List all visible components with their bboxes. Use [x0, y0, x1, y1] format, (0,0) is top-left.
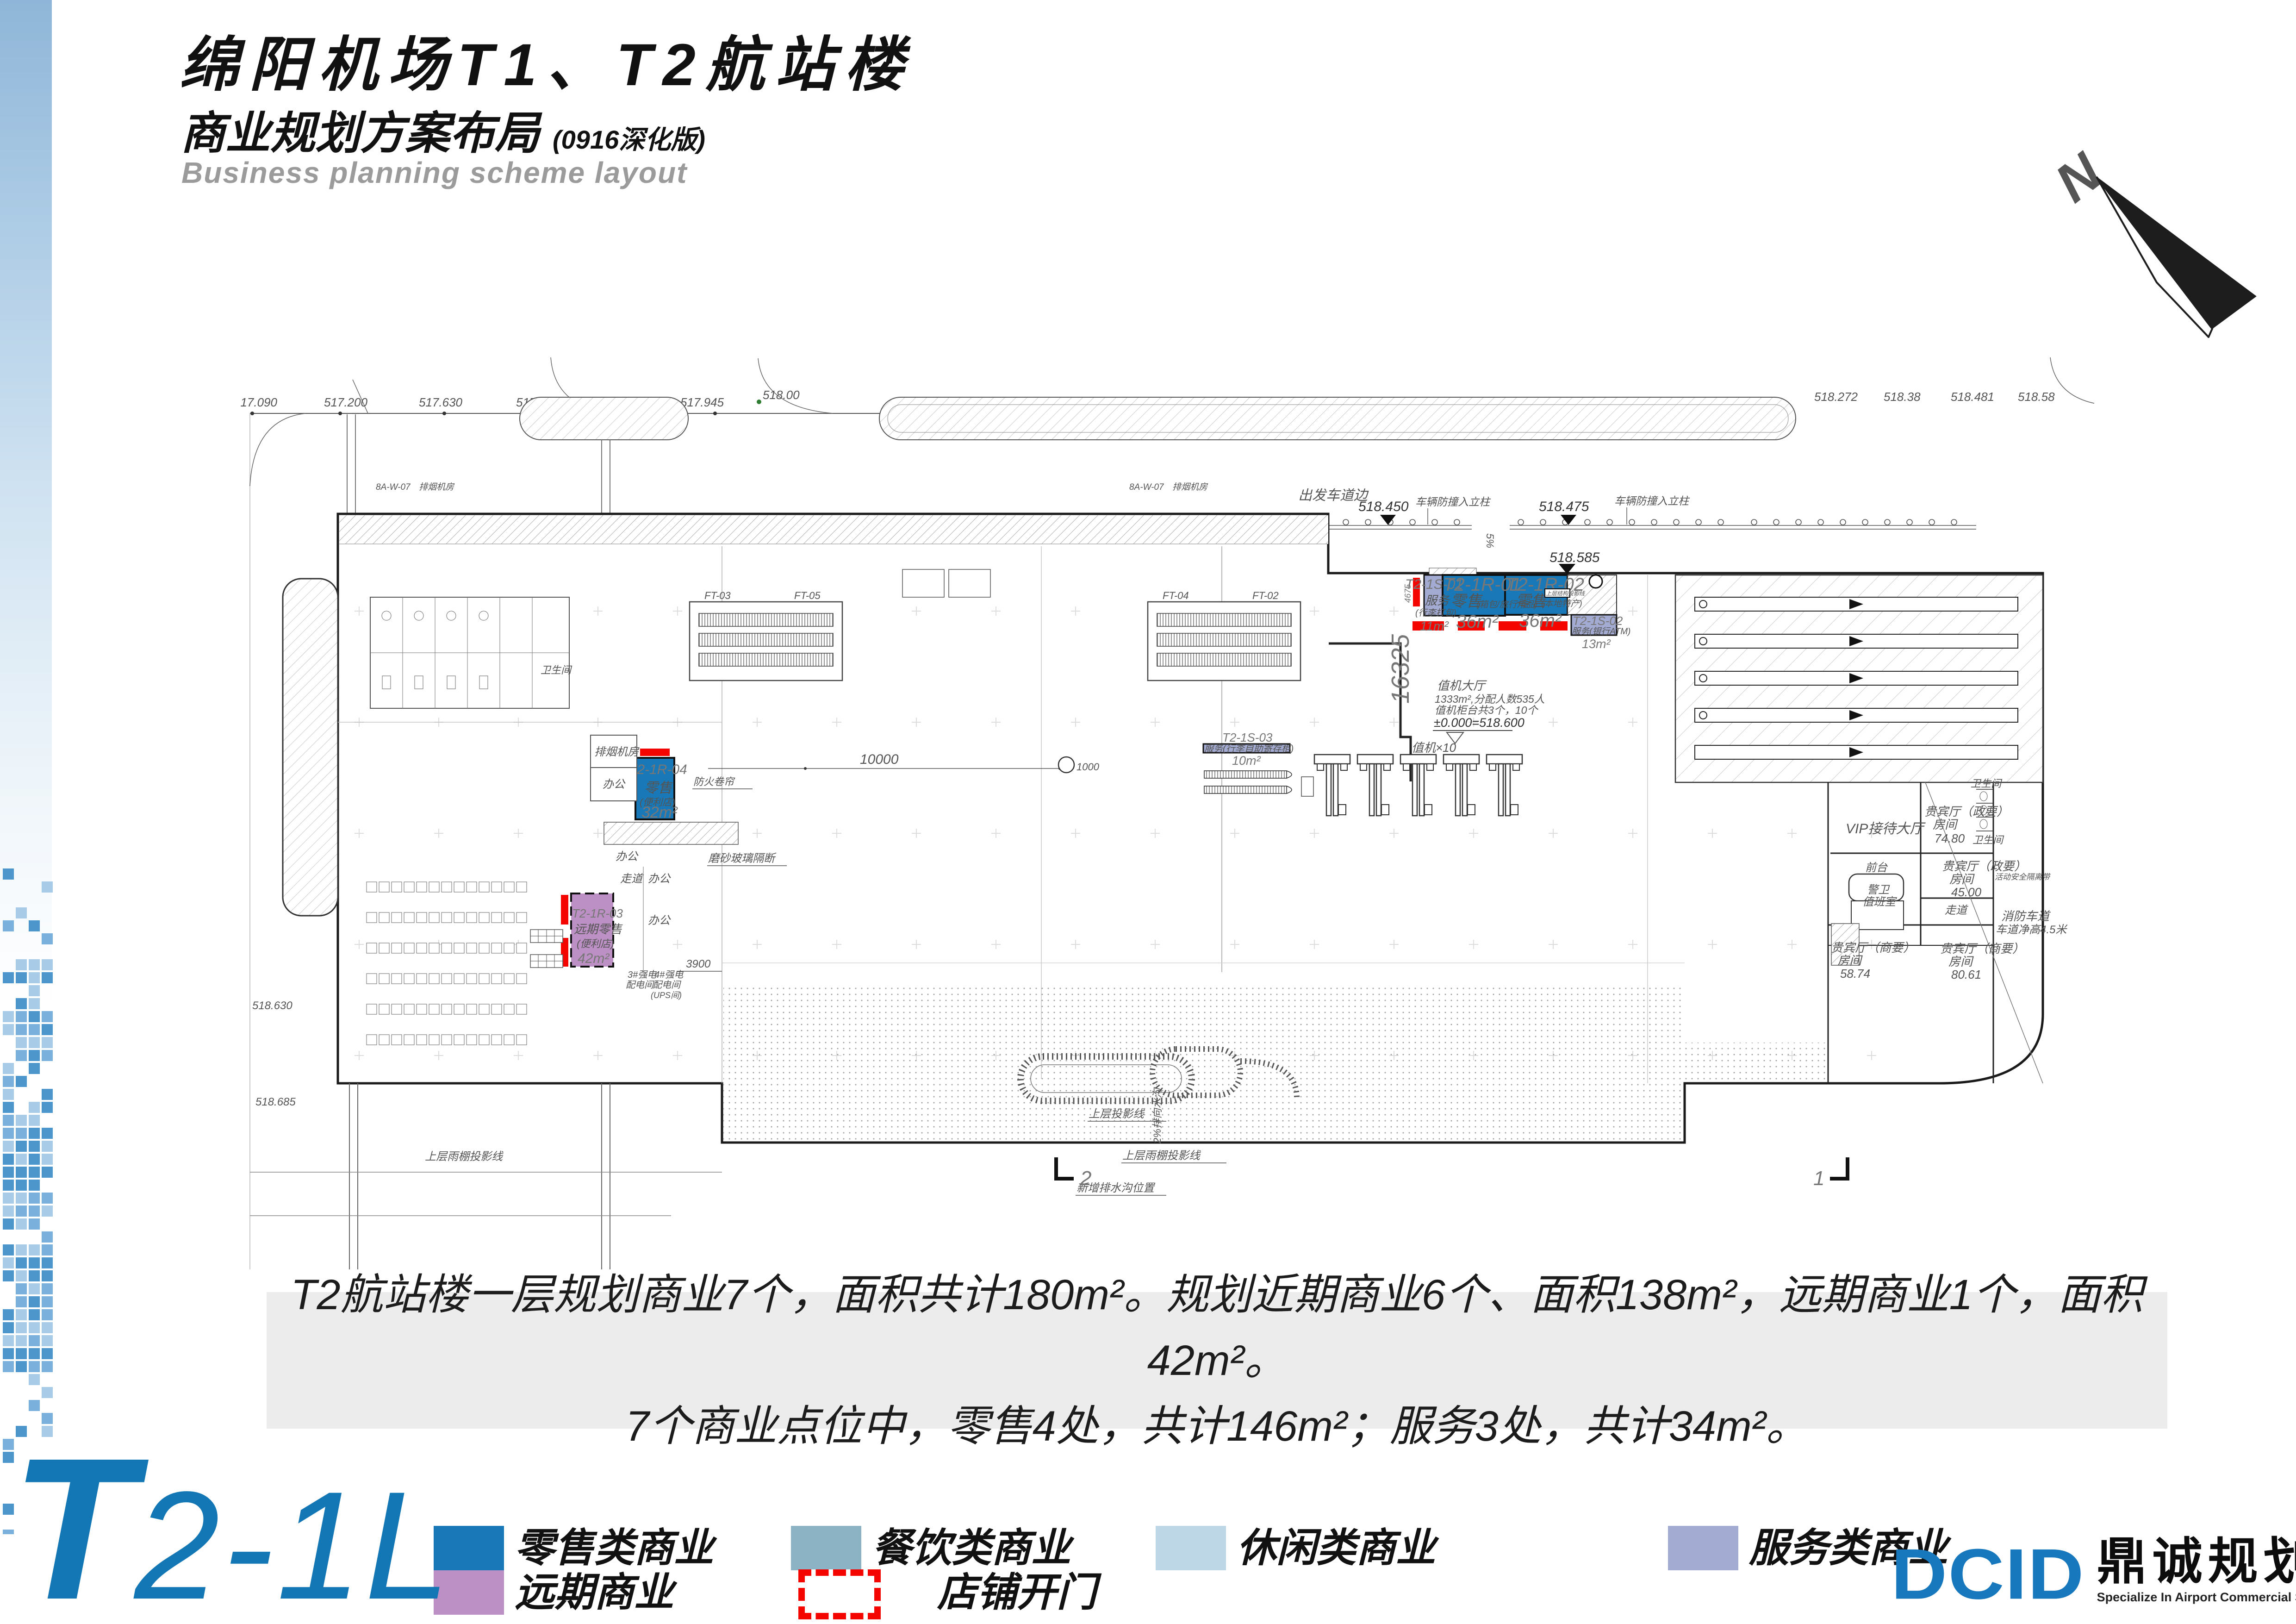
plan-label: 办公: [603, 778, 626, 791]
plan-label: 上层投影线: [1089, 1108, 1145, 1120]
plan-label: 前台: [1865, 862, 1888, 874]
plan-label: 配电间: [626, 980, 655, 990]
floor-code: T2-1L: [11, 1428, 453, 1624]
plan-label: 74.80: [1935, 831, 1965, 845]
unit-id: T2-1R-04: [628, 762, 687, 777]
left-annex: [283, 579, 338, 916]
plan-label: 518.685: [255, 1096, 296, 1108]
plan-label: FT-05: [794, 590, 821, 601]
unit-id: T2-1S-03: [1222, 731, 1273, 744]
unit-name: 远期零售: [574, 922, 623, 936]
plan-label: 卫生间: [541, 664, 572, 676]
plan-label: 518.475: [1539, 499, 1589, 514]
plan-label: 8A-W-07: [1129, 482, 1164, 492]
plan-label: 10000: [860, 752, 899, 767]
plan-label: FT-04: [1163, 590, 1189, 601]
plan-label: 517.090: [241, 395, 278, 409]
section-marker: 2: [1080, 1167, 1091, 1190]
plan-label: 8A-W-07: [376, 482, 411, 492]
plan-label: 警卫: [1867, 884, 1890, 896]
svg-text:服务(行李自助寄存柜): 服务(行李自助寄存柜): [1204, 744, 1294, 754]
summary-box: T2航站楼一层规划商业7个，面积共计180m²。规划近期商业6个、面积138m²…: [267, 1292, 2167, 1429]
plan-label: 排烟机房: [594, 746, 640, 758]
plan-label: 517.200: [324, 395, 368, 409]
plan-label: 磨砂玻璃隔断: [708, 852, 777, 865]
plan-label: (UPS间): [651, 991, 682, 1000]
legend-swatch-service: [1668, 1526, 1738, 1570]
unit-id: T2-1R-03: [572, 906, 623, 920]
plan-label: 卫生间: [1971, 778, 2003, 789]
plan-label: 值机柜台共3个，10个: [1435, 704, 1538, 716]
plan-label: 518.58: [2018, 390, 2055, 404]
unit-sub: (银行ATM): [1589, 627, 1630, 637]
plan-label: 上层结构投影线: [1546, 590, 1585, 597]
plan-label: 上层雨棚投影线: [425, 1150, 504, 1163]
shop-opening: [640, 749, 670, 756]
unit-area: 10m²: [1232, 754, 1261, 768]
unit-area: 42m²: [578, 951, 610, 966]
plan-label: 排烟机房: [1172, 482, 1208, 492]
plan-label: 上层雨棚投影线: [1122, 1149, 1201, 1162]
plan-label: 贵宾厅（政要）: [1924, 805, 2009, 818]
sheet: 绵阳机场T1、T2航站楼 商业规划方案布局(0916深化版) Business …: [0, 0, 2296, 1624]
plan-label: 518.00: [763, 388, 800, 402]
plan-label: VIP接待大厅: [1846, 821, 1926, 837]
plan-label: 518.450: [1358, 499, 1409, 514]
north-arrow-dark: [2097, 177, 2256, 329]
plan-label: 517.630: [419, 395, 463, 409]
company-logo: DCID 鼎诚规划设计 Specialize In Airport Commer…: [1891, 1535, 2296, 1613]
plan-label: 贵宾厅（商要）: [1940, 942, 2024, 956]
plan-label: 5%: [1484, 533, 1496, 548]
plan-label: 贵宾厅（政要）: [1942, 859, 2026, 873]
plan-label: 16325: [1387, 634, 1414, 704]
legend-label-longterm: 远期商业: [515, 1570, 674, 1615]
plan-label: 45.00: [1951, 885, 1982, 899]
page-subtitle-en: Business planning scheme layout: [181, 156, 687, 190]
legend-label-leisure: 休闲类商业: [1237, 1526, 1436, 1570]
shop-opening: [561, 895, 568, 924]
svg-text:服务(银行ATM): 服务(银行ATM): [1572, 627, 1630, 637]
plan-label: 房间: [1949, 872, 1975, 886]
page-title: 绵阳机场T1、T2航站楼: [180, 17, 914, 102]
plan-label: 活动安全隔离带: [1995, 873, 2051, 881]
plan-label: 3900: [686, 958, 711, 970]
plan-label: 4675: [1403, 584, 1412, 603]
legend-swatch-shop-opening: [798, 1569, 881, 1619]
unit-name: 服务: [1425, 593, 1450, 607]
plan-label: 走道: [620, 873, 644, 885]
summary-line2: 7个商业点位中，零售4处，共计146m²；服务3处，共计34m²。: [267, 1393, 2167, 1459]
section-marker: 1: [1813, 1167, 1824, 1190]
unit-area: 36m²: [1519, 611, 1562, 631]
unit-sub: (便利店): [577, 938, 614, 949]
plan-label: 走道: [1945, 904, 1968, 917]
floor-code-rest: 2-1L: [134, 1469, 453, 1623]
plan-label: 房间: [1948, 955, 1974, 968]
plan-label: 值班室: [1862, 896, 1897, 908]
plan-label: 办公: [616, 850, 639, 863]
plan-label: 配电间: [653, 980, 682, 990]
legend-label-shop-opening: 店铺开门: [937, 1570, 1096, 1615]
logo-dcid: DCID: [1891, 1538, 2085, 1610]
plan-label: 值机大厅: [1437, 679, 1487, 693]
unit-area: 11m²: [1420, 619, 1449, 633]
unit-id: T2-1S-02: [1573, 614, 1623, 628]
plan-label: 车辆防撞入立柱: [1415, 496, 1491, 508]
plan-label: 贵宾厅（商要）: [1831, 941, 1915, 955]
plan-label: 3#强电: [628, 970, 657, 980]
logo-en: Specialize In Airport Commercial Space P…: [2097, 1590, 2296, 1605]
unit-area: 32m²: [641, 804, 678, 821]
plan-label: 518.630: [252, 999, 292, 1012]
facade-strip: [339, 515, 1328, 544]
plan-label: 房间: [1837, 954, 1863, 968]
plan-label: 518.272: [1814, 390, 1858, 404]
plan-label: 办公: [648, 914, 671, 927]
unit-name: 服务: [1204, 744, 1224, 754]
legend-label-retail: 零售类商业: [515, 1526, 714, 1570]
legend-swatch-dining: [791, 1526, 861, 1570]
toilet-block: 卫生间: [370, 597, 572, 708]
plan-label: 58.74: [1840, 967, 1870, 981]
north-letter: N: [2046, 144, 2114, 214]
plan-label: 518.585: [1549, 550, 1600, 565]
plan-label: 值机×10: [1412, 741, 1456, 755]
unit-area: 36m²: [1456, 612, 1499, 632]
plan-label: 1333m²,分配人数535人: [1435, 693, 1545, 705]
legend-swatch-leisure: [1156, 1526, 1226, 1570]
plan-label: 517.945: [680, 395, 724, 409]
plan-label: 80.61: [1951, 968, 1981, 981]
plan-label: 1000: [1076, 761, 1100, 773]
plan-label: 2%排向水沟: [1151, 1087, 1163, 1144]
unit-sub: (行李自助寄存柜): [1223, 744, 1294, 754]
plan-label: 防火卷帘: [693, 776, 735, 787]
plan-label: ±0.000=518.600: [1434, 716, 1524, 730]
floor-code-T: T: [11, 1428, 134, 1624]
plan-label: 518.38: [1884, 390, 1921, 404]
plan-label: 车辆防撞入立柱: [1614, 495, 1690, 507]
plan-label: FT-03: [704, 590, 731, 601]
plan-label: 房间: [1933, 818, 1958, 831]
page-subtitle: 商业规划方案布局(0916深化版): [180, 96, 705, 162]
subtitle-text: 商业规划方案布局: [180, 108, 540, 158]
legend-label-dining: 餐饮类商业: [872, 1526, 1071, 1570]
unit-sub: (本地特产): [1541, 599, 1582, 609]
sidebar-decor: [0, 0, 52, 1624]
plan-label: FT-02: [1252, 590, 1279, 601]
unit-name: 零售: [644, 781, 673, 796]
plan-label: 车道净高4.5米: [1996, 924, 2067, 936]
plan-label: 办公: [648, 873, 671, 885]
plan-label: 518.481: [1951, 390, 1994, 404]
plan-label: 消防车道: [2001, 909, 2051, 923]
plan-label: 排烟机房: [419, 482, 455, 492]
plan-label: 卫生间: [1972, 834, 2004, 846]
subtitle-note: (0916深化版): [553, 125, 705, 154]
logo-cn: 鼎诚规划设计: [2097, 1535, 2296, 1587]
unit-area: 13m²: [1582, 637, 1611, 651]
unit-name: 服务: [1572, 627, 1590, 637]
summary-line1: T2航站楼一层规划商业7个，面积共计180m²。规划近期商业6个、面积138m²…: [267, 1262, 2167, 1393]
floor-plan: 517.090 517.200 517.630 517.735 517.945 …: [241, 356, 2094, 1282]
north-arrow-icon: N: [2046, 144, 2268, 338]
